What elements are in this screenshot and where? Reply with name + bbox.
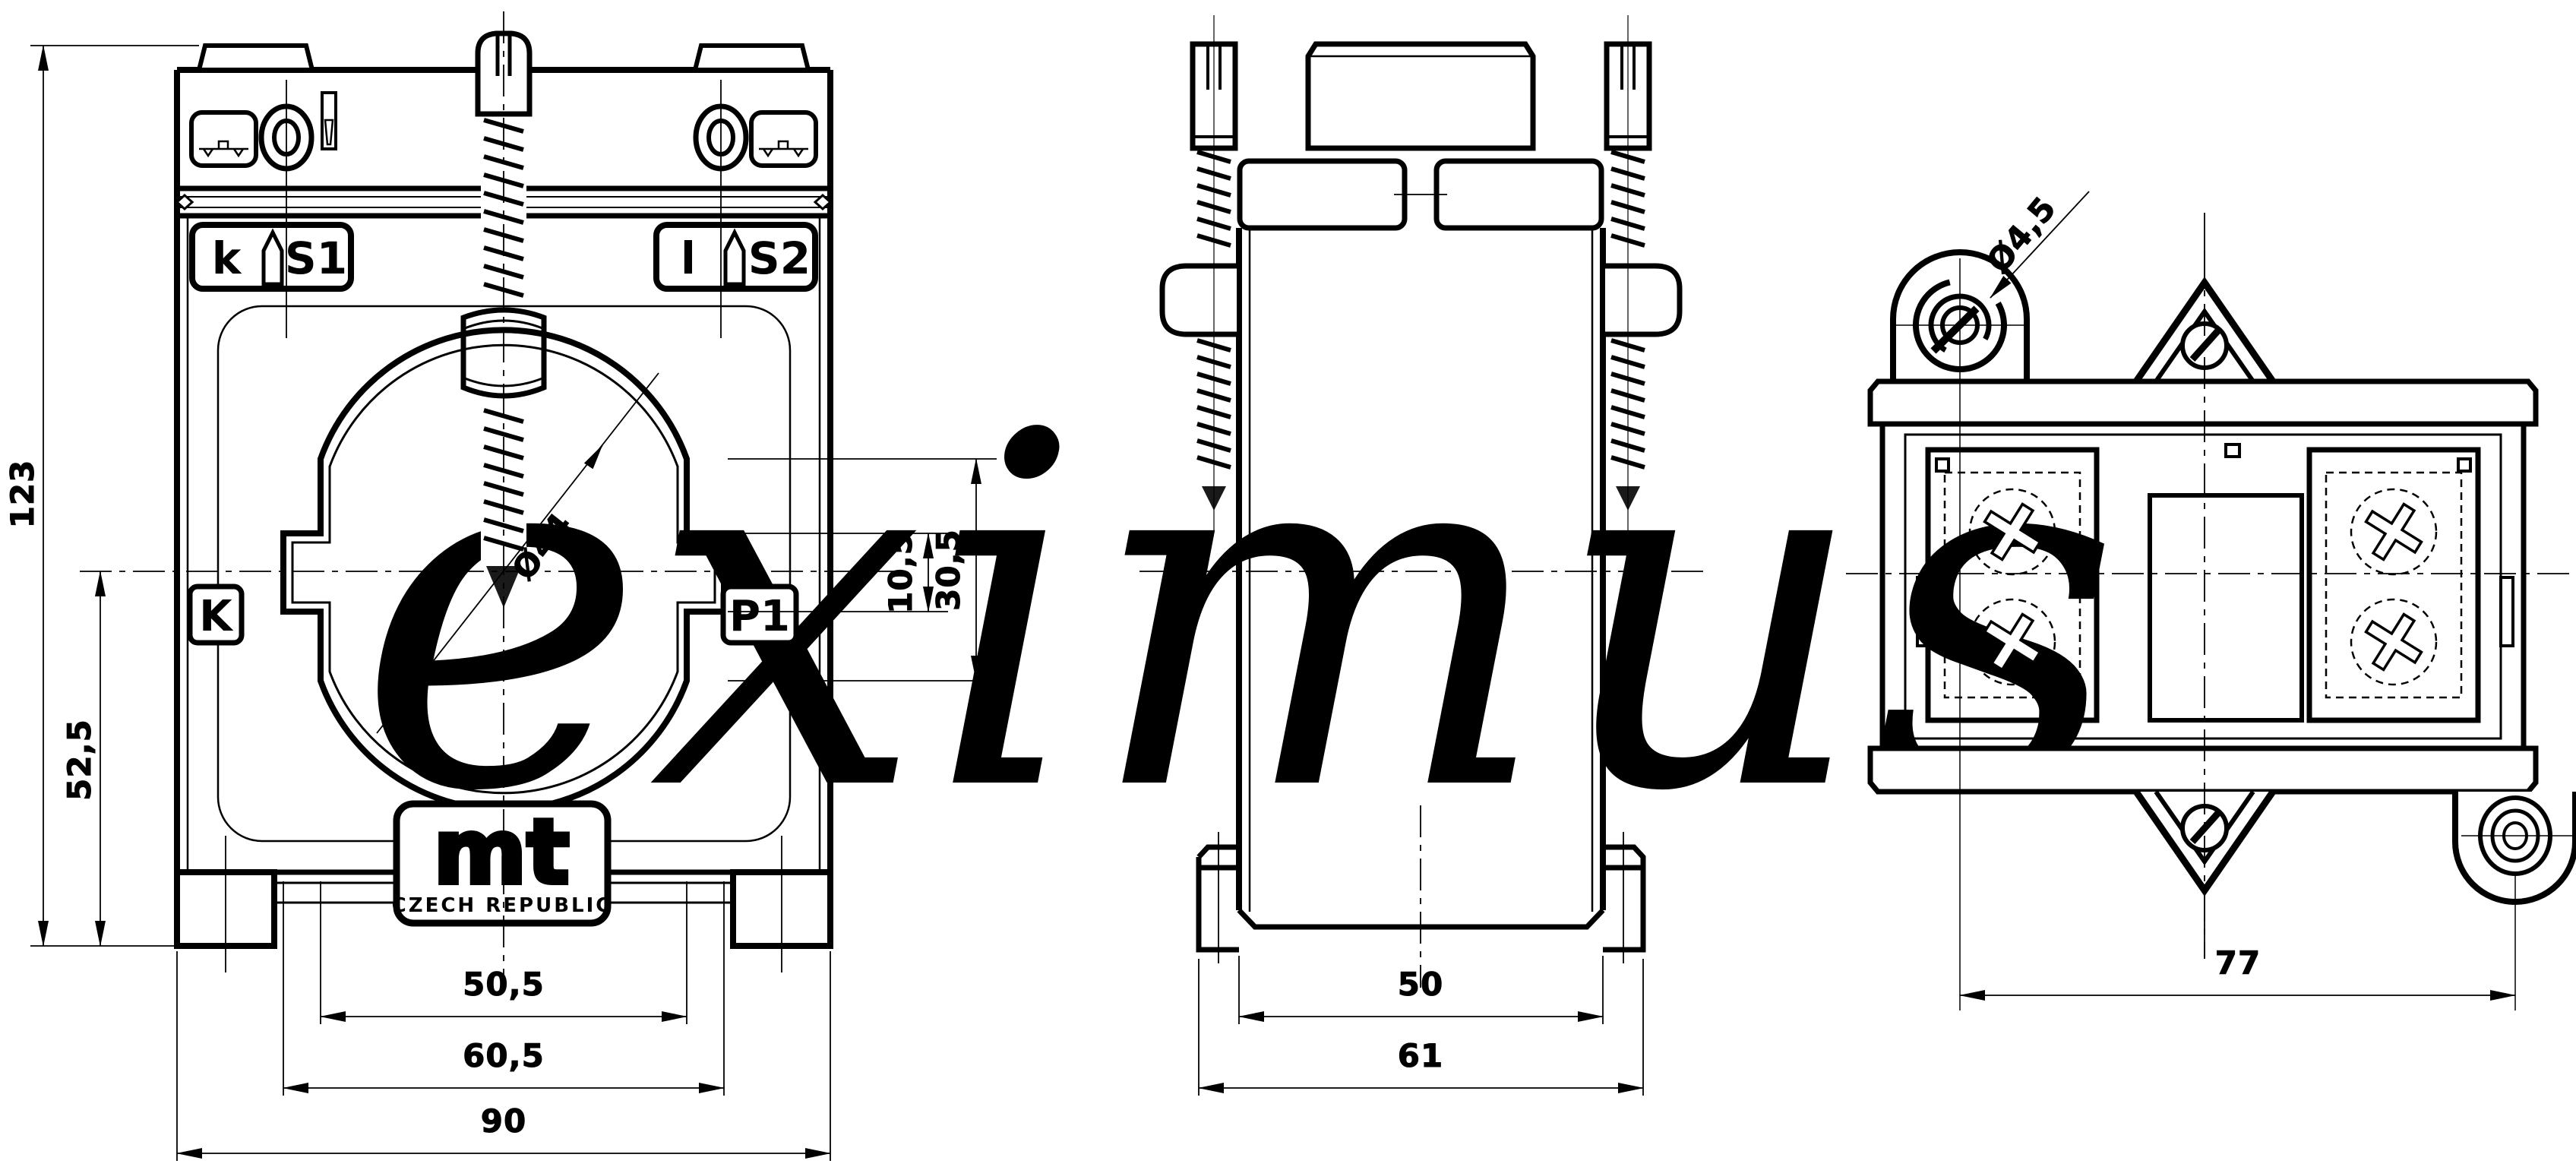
- winding-label-K: K: [199, 592, 234, 641]
- dim-text-window-width-inner: 50,5: [463, 966, 545, 1003]
- dim-text-overall-depth: 61: [1398, 1037, 1443, 1074]
- dimension-depths: 50 61: [1199, 956, 1643, 1096]
- terminal-label-s1: S1: [285, 232, 347, 284]
- dim-text-hole-spacing: 77: [2215, 944, 2261, 982]
- dim-text-window-width-outer: 60,5: [463, 1037, 545, 1074]
- dim-text-body-depth: 50: [1398, 966, 1443, 1003]
- dimension-heights: 123 52,5: [4, 46, 199, 946]
- polarity-arrow-icon: [264, 232, 282, 284]
- dim-text-window-height-inner: 10,5: [882, 532, 919, 614]
- brand-logo-text: mt: [433, 799, 569, 904]
- dim-text-window-height-outer: 30,5: [930, 529, 967, 611]
- winding-label-P1: P1: [729, 592, 790, 641]
- technical-drawing-sheet: eximus ®: [0, 0, 2576, 1167]
- dim-text-mounting-hole: Ø4,5: [1979, 189, 2063, 280]
- terminal-label-l: l: [681, 232, 696, 284]
- phillips-screw-icon: [2354, 602, 2434, 682]
- terminal-label-k: k: [212, 232, 242, 284]
- current-transformer-drawing: eximus ®: [0, 0, 2576, 1167]
- dim-text-center-to-base: 52,5: [61, 719, 98, 801]
- brand-logo-origin: CZECH REPUBLIC: [392, 894, 613, 917]
- dim-text-overall-width: 90: [481, 1102, 526, 1140]
- rear-snap-tab-top: [2136, 213, 2273, 381]
- polarity-arrow-icon: [725, 232, 744, 284]
- terminal-label-s2: S2: [748, 232, 811, 284]
- brand-logo: mt CZECH REPUBLIC: [392, 799, 613, 923]
- dim-text-overall-height: 123: [4, 460, 41, 529]
- phillips-screw-icon: [2354, 492, 2434, 572]
